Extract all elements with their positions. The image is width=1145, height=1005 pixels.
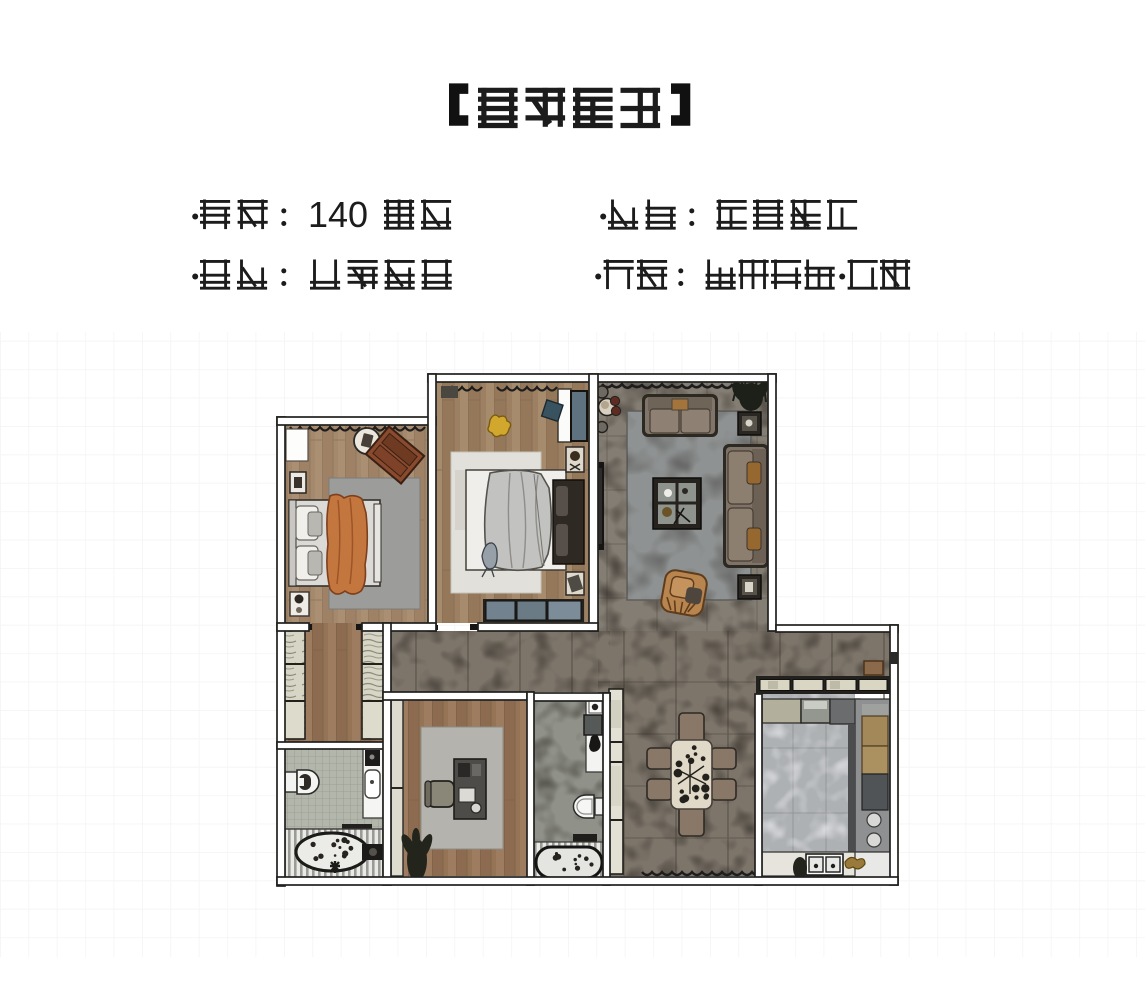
svg-text:140: 140: [308, 194, 368, 235]
